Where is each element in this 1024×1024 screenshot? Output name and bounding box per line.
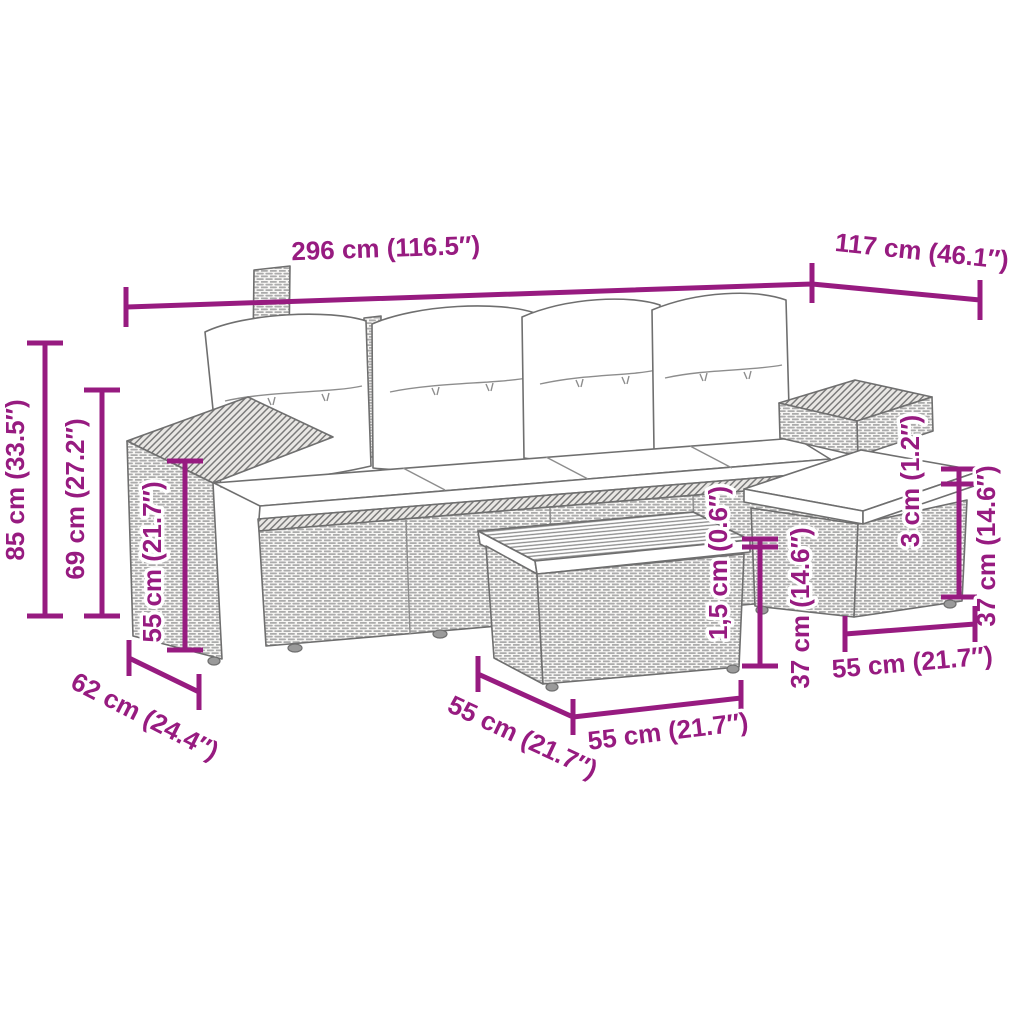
dim-overall-width-label: 296 cm (116.5″) (291, 230, 481, 267)
dim-total-height-label: 85 cm (33.5″) (0, 399, 30, 560)
dim-stool-width: 55 cm (21.7″) (831, 606, 994, 684)
dim-table-side-label: 55 cm (21.7″) (443, 689, 602, 784)
diagram-canvas: 296 cm (116.5″) 117 cm (46.1″) 85 cm (33… (0, 0, 1024, 1024)
dim-sofa-depth: 62 cm (24.4″) (66, 640, 223, 766)
dim-back-height-label: 69 cm (27.2″) (60, 418, 90, 579)
dim-back-height: 69 cm (27.2″) (60, 390, 120, 616)
dim-table-front: 55 cm (21.7″) (573, 680, 750, 756)
dim-tabletop-thickness-label: 1,5 cm (0.6″) (703, 486, 733, 640)
dim-overall-depth: 117 cm (46.1″) (812, 227, 1010, 320)
dim-table-height-label: 37 cm (14.6″) (785, 527, 815, 688)
dim-overall-depth-label: 117 cm (46.1″) (834, 227, 1011, 275)
dim-stool-cushion-thickness-label: 3 cm (1.2″) (895, 415, 925, 547)
dim-stool-width-label: 55 cm (21.7″) (831, 640, 994, 684)
back-pillow-4 (652, 293, 790, 455)
back-pillow-3 (522, 299, 663, 460)
back-pillow-2 (372, 306, 538, 470)
dim-armrest-height-label: 55 cm (21.7″) (137, 481, 167, 642)
dimension-diagram: 296 cm (116.5″) 117 cm (46.1″) 85 cm (33… (0, 0, 1024, 1024)
dim-stool-height-label: 37 cm (14.6″) (971, 465, 1001, 626)
dim-total-height: 85 cm (33.5″) (0, 343, 63, 616)
